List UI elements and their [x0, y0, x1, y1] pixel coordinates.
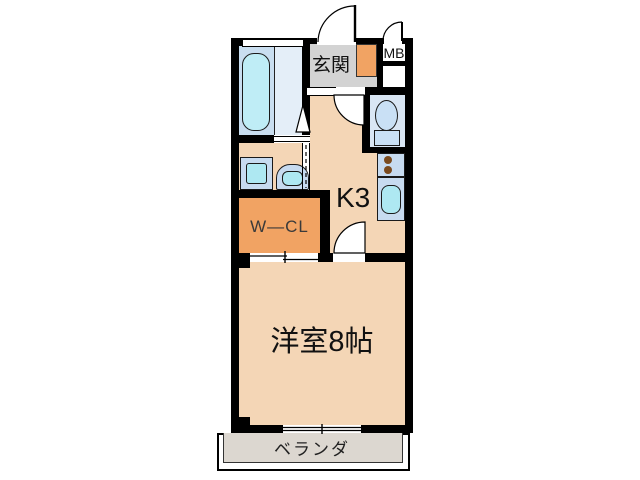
entrance-door-opening — [317, 37, 356, 45]
wall — [231, 190, 330, 198]
stove-burner — [384, 166, 392, 174]
main-room-label: 洋室8帖 — [239, 328, 405, 357]
wall — [320, 190, 330, 262]
toilet-bowl — [375, 100, 398, 131]
veranda-label: ベランダ — [223, 441, 401, 458]
balcony-window — [283, 425, 361, 433]
toilet-tank — [374, 130, 400, 146]
kitchen-door-opening — [333, 253, 365, 262]
bathroom-door-opening — [274, 135, 310, 143]
vanity-basin — [282, 171, 303, 186]
entrance-inner-door-opening — [336, 87, 365, 95]
closet-label: W—CL — [239, 218, 320, 235]
bathtub — [242, 53, 270, 131]
entrance-label: 玄関 — [312, 56, 350, 75]
wall-pillar — [231, 417, 250, 433]
meter-box-label: MB — [383, 46, 405, 60]
washing-machine — [246, 163, 267, 184]
wall — [362, 87, 370, 153]
wall — [231, 38, 239, 433]
kitchen-label: K3 — [336, 184, 370, 212]
wall — [405, 38, 413, 433]
bathroom-window — [242, 39, 304, 47]
stove-burner — [384, 156, 392, 164]
shoe-cabinet — [356, 44, 377, 77]
closet-sliding-door — [250, 253, 318, 262]
kitchen-sink — [381, 185, 401, 214]
wall — [377, 61, 413, 66]
meter-box-door-opening — [384, 37, 402, 45]
entrance-step — [306, 87, 337, 96]
bathroom-floor — [274, 44, 302, 135]
wall-pillar — [231, 253, 250, 268]
pipe-space-box — [383, 66, 405, 87]
floor-plan: 玄関 MB K3 W—CL 洋室8帖 ベランダ — [0, 0, 640, 480]
